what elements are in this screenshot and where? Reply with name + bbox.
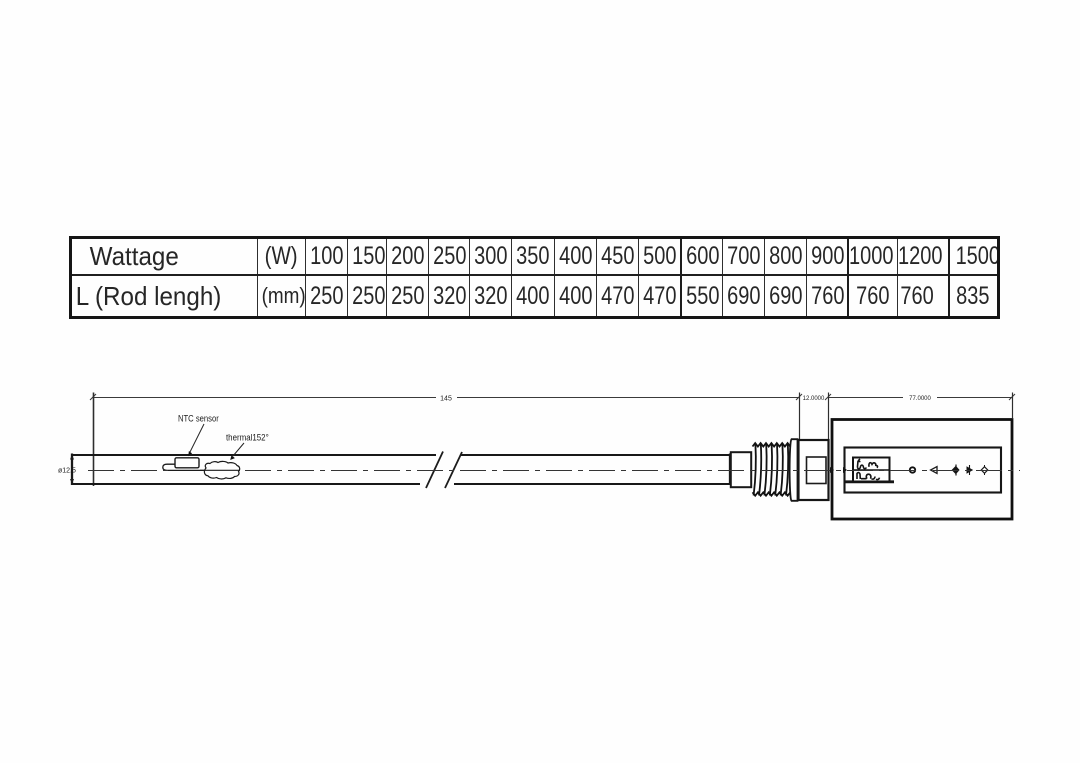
svg-text:145: 145 (440, 396, 452, 403)
svg-text:thermal152°: thermal152° (226, 432, 269, 443)
svg-text:ø12.5: ø12.5 (58, 468, 76, 475)
svg-text:NTC sensor: NTC sensor (178, 413, 219, 424)
svg-text:77.0000: 77.0000 (909, 396, 931, 402)
svg-text:12.0000: 12.0000 (803, 396, 825, 402)
